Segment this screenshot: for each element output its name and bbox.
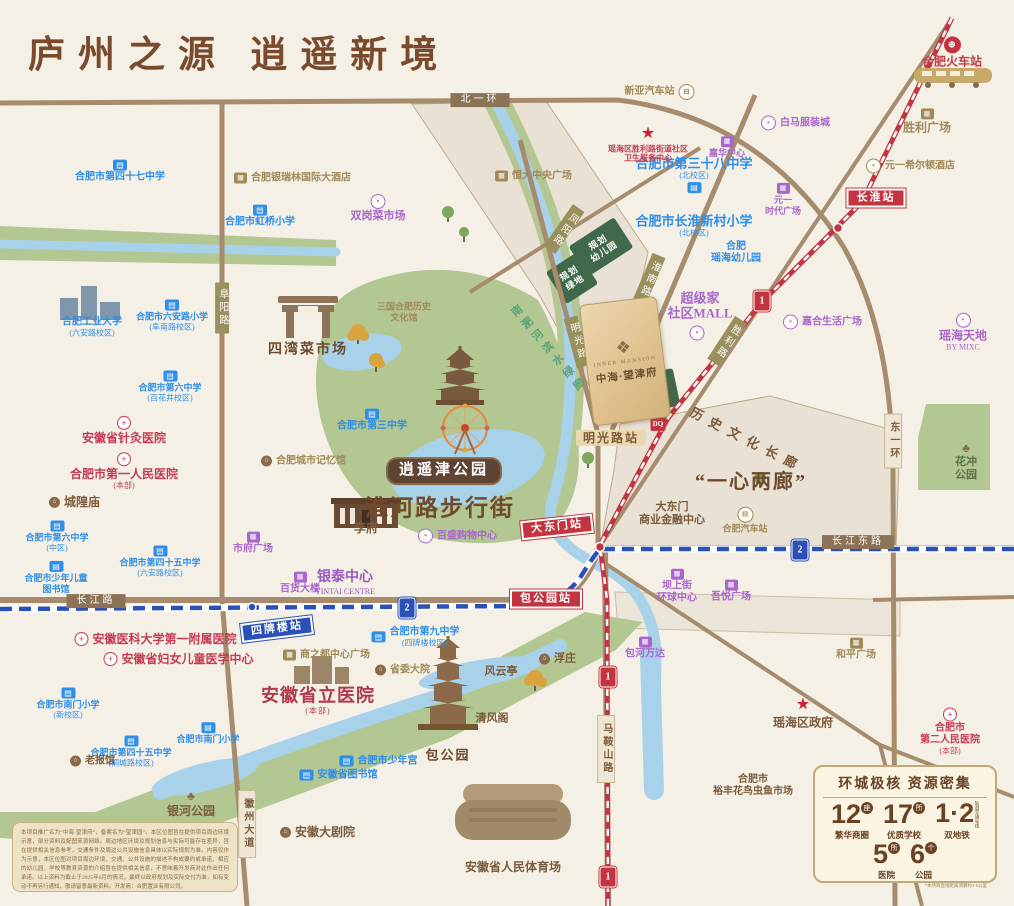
school-label: ▤合肥市六安路小学(阜南路校区): [136, 298, 208, 331]
mall-label: ▦元一时代广场: [765, 182, 801, 216]
hotel-label: ▦合肥银瑞林国际大酒店: [233, 172, 351, 185]
stadium-illustration: [455, 784, 571, 840]
mall-label: ▦胜利广场: [903, 107, 951, 134]
archway-illustration: [278, 296, 338, 338]
gld-icon: ▦: [495, 171, 508, 182]
sch-icon: ▤: [61, 687, 75, 698]
school-label: ▤合肥市南门小学(新校区): [36, 686, 99, 719]
gld-icon: ▦: [283, 650, 296, 661]
school-label: ▤合肥市虹桥小学: [225, 204, 295, 229]
star-icon: ★: [642, 126, 655, 143]
metro-line1-badge: 1: [753, 290, 772, 313]
market-label: ▪双岗菜市场: [351, 193, 406, 223]
stat-item: 1·2轨道交通号线双地铁: [935, 800, 979, 841]
road-label-maanshanlu: 马鞍山路: [597, 715, 615, 783]
dot-icon: ⌂: [539, 654, 550, 665]
school-label: ▤合肥市第六中学(百花井校区): [138, 369, 201, 402]
stat-item: 12座繁华商圈: [831, 801, 873, 841]
dot-icon: ⌂: [280, 827, 291, 838]
mall-label: ▦坝上街环球中心: [657, 568, 697, 605]
m2-icon: 2: [399, 598, 416, 619]
pur-icon: ▦: [671, 569, 684, 580]
market-label: 合肥市裕丰花鸟虫鱼市场: [713, 774, 793, 798]
hospital-label: +合肥市第一人民医院(本部): [70, 451, 178, 491]
mall-label: ▦市府广场: [233, 531, 273, 556]
theater-label: ⌂安徽大剧院: [279, 825, 355, 839]
sch-icon: ▤: [253, 205, 267, 216]
mall-label: ▦恒大中央广场: [494, 170, 572, 183]
slogan-label: “一心两廊”: [695, 471, 807, 495]
purO-icon: ▪: [783, 315, 798, 330]
sch-icon: ▤: [50, 520, 64, 531]
purO-icon: ▪: [955, 313, 970, 328]
star-icon: ★: [797, 698, 810, 715]
road-label-beiyihuan: 北一环: [451, 93, 510, 107]
stat-item: 6个公园: [910, 841, 937, 881]
road-label-changjianglu: 长江路: [67, 594, 126, 608]
dot-icon: ⌂: [375, 665, 386, 676]
gldO-icon: ▪: [866, 159, 881, 174]
m1-icon: 1: [600, 867, 617, 888]
m2-icon: 2: [792, 540, 809, 561]
hos-icon: +: [74, 632, 88, 646]
metro-line1-badge: 1: [599, 666, 618, 689]
hospital-label: +合肥市第二人民医院(本部): [920, 706, 980, 755]
stats-title: 环城极核 资源密集: [823, 773, 987, 798]
purO-icon: ▪: [690, 326, 705, 341]
park-label: ♣花冲公园: [955, 440, 977, 482]
mall-label: ▦和平广场: [836, 637, 876, 662]
government-label: ★瑶海区政府: [773, 697, 833, 730]
sch-icon: ▤: [300, 770, 314, 781]
clinic-label: ★瑶海区胜利路街道社区卫生服务中心: [608, 125, 688, 162]
page-title: 庐州之源 逍遥新境: [28, 24, 450, 78]
dq-icon: DQ: [651, 417, 666, 431]
pur-icon: ▦: [720, 136, 733, 147]
mall-icon: ▪: [689, 325, 706, 342]
stat-item: 17所优质学校: [883, 801, 925, 841]
hospital-label: +安徽省针灸医院: [82, 415, 166, 445]
sch-icon: ▤: [49, 561, 63, 572]
mall-label: ▪嘉合生活广场: [782, 314, 862, 331]
road-label-huizhoudadao: 徽州大道: [238, 790, 256, 858]
street-label: 淮河路步行街: [365, 494, 515, 521]
mall-label: 银泰中心YINTAI CENTRE: [315, 570, 375, 596]
museum-label: ⌂合肥城市记忆馆: [260, 455, 346, 468]
stat-item: 5所医院: [873, 841, 900, 881]
purO-icon: ▪: [418, 529, 433, 544]
pur-icon: ▦: [725, 580, 738, 591]
pur-icon: ▦: [294, 572, 307, 583]
sch-icon: ▤: [340, 756, 354, 767]
stats-note: *本项目直线距离测算约3-6公里: [823, 883, 987, 889]
mall-label: ▦嘉华中心: [709, 135, 745, 159]
mall-label: 超级家社区MALL: [667, 291, 732, 322]
museum-label: ⌂老报馆: [69, 755, 115, 768]
sch-icon: ▤: [113, 160, 127, 171]
park-label: ♣银河公园: [167, 788, 215, 818]
sch-icon: ▤: [165, 299, 179, 310]
landmark-label: 李府: [354, 521, 378, 535]
pavilion-label: 清风阁: [476, 713, 509, 726]
park-badge: 逍遥津公园: [388, 459, 500, 483]
station-baogongyuan: 包公园站: [512, 592, 580, 607]
tree-icon: ♣: [187, 789, 195, 803]
school-label: 合肥工业大学(六安路校区): [62, 316, 122, 337]
dot-icon: ⌂: [261, 456, 272, 467]
bus-station-label: 新亚汽车站⊟: [625, 83, 696, 101]
sch-icon: ▤: [153, 545, 167, 556]
pur-icon: ▦: [639, 637, 652, 648]
hotel-label: ▪元一希尔顿酒店: [865, 158, 955, 175]
school-label: ▤合肥市少年儿童图书馆: [24, 560, 87, 594]
museum-label: 三国合肥历史文化馆: [377, 301, 431, 322]
dot-icon: ⌂: [49, 497, 60, 508]
stats-panel: 环城极核 资源密集 12座繁华商圈17所优质学校1·2轨道交通号线双地铁5所医院…: [813, 765, 997, 883]
park-label: 包公园: [425, 747, 470, 762]
project-site-block: ❖ INNER MANSION 中海·望津府: [579, 296, 671, 427]
mall-label: ▪瑶海天地BY MIXC: [939, 312, 987, 353]
pavilion-label: 风云亭: [485, 666, 518, 679]
road-label-changjiangdonglu: 长江东路: [822, 535, 894, 549]
hos-icon: +: [943, 707, 957, 721]
disclaimer-text: 本项目推广名为“中海·望津府”，备案名为“望津园”。本区位图旨在提供项目周边环境…: [12, 822, 238, 892]
pur-icon: ▦: [776, 183, 789, 194]
sch-icon: ▤: [365, 409, 379, 420]
school-label: ▤安徽省图书馆: [299, 769, 378, 782]
university-building-illustration: [60, 286, 120, 320]
bus-station-label: ⊟合肥汽车站: [722, 506, 767, 535]
tree-icon: ♣: [962, 441, 970, 455]
school-label: ▤合肥市第三中学: [337, 408, 407, 433]
mall-label: ▦吾悦广场: [711, 579, 751, 604]
stadium-label: 安徽省人民体育场: [465, 860, 561, 874]
m1-icon: 1: [600, 667, 617, 688]
gld-icon: ▦: [850, 638, 863, 649]
sch-icon: ▤: [372, 631, 386, 642]
train-illustration: [914, 68, 992, 88]
pavilion-label: ⌂浮庄: [538, 653, 576, 666]
bus-icon: ⊟: [737, 507, 753, 523]
gld-icon: ▦: [234, 173, 247, 184]
sch-icon: ▤: [201, 722, 215, 733]
school-label: ▤合肥市第九中学(四牌楼校区): [371, 626, 460, 647]
hos-icon: +: [103, 652, 117, 666]
school-label: 合肥市长淮新村小学(北校区): [635, 214, 752, 239]
project-logo-icon: ❖: [615, 338, 632, 357]
school-label: ▤合肥市南门小学: [176, 721, 239, 745]
railway-station-label: ⊕合肥火车站: [922, 35, 982, 68]
m1-icon: 1: [754, 291, 771, 312]
pur-icon: ▦: [247, 532, 260, 543]
metro-line2-badge: 2: [398, 597, 417, 620]
hospital-label: +安徽医科大学第一附属医院: [73, 631, 236, 647]
road-label-dongyihuan: 东一环: [884, 414, 902, 469]
school-label: ▤合肥市少年宫: [339, 755, 418, 768]
hospital-label: 安徽省立医院(本部): [261, 686, 375, 717]
sch-icon: ▤: [163, 370, 177, 381]
metro-line2-badge: 2: [791, 539, 810, 562]
landmark-label: ⌂省委大院: [374, 664, 430, 677]
map-poster: { "title": "庐州之源 逍遥新境", "project": {"nam…: [0, 0, 1014, 906]
stats-grid: 12座繁华商圈17所优质学校1·2轨道交通号线双地铁5所医院6个公园: [823, 798, 987, 881]
purO-icon: ▪: [761, 116, 776, 131]
hos-icon: +: [117, 452, 131, 466]
temple-label: ⌂城隍庙: [48, 495, 100, 509]
school-label: ▤合肥市第四十七中学: [75, 159, 165, 184]
dot-icon: ⌂: [70, 756, 81, 767]
mall-label: ▦商之都中心广场: [282, 649, 370, 662]
district-label: 大东门商业金融中心: [639, 501, 705, 527]
metro-line1-badge: 1: [599, 866, 618, 889]
gld-icon: ▦: [920, 108, 933, 119]
market-label: 四湾菜市场: [268, 343, 348, 360]
school-label: ▤合肥市第四十五中学(六安路校区): [119, 544, 200, 577]
purO-icon: ▪: [371, 194, 386, 209]
station-changhuai: 长淮站: [849, 191, 904, 206]
school-label: 合肥瑶海幼儿园: [711, 241, 761, 265]
road-label-fuyanglu: 阜阳路: [215, 283, 229, 334]
station-mingguanglu: 明光路站: [576, 430, 646, 446]
mall-label: ▦包河万达: [625, 636, 665, 661]
hospital-label: +安徽省妇女儿童医学中心: [102, 651, 253, 667]
mall-label: ▪百盛购物中心: [417, 528, 497, 545]
sch-icon: ▤: [124, 735, 138, 746]
hos-icon: +: [117, 416, 131, 430]
bus-icon: ⊟: [679, 84, 695, 100]
school-label: ▤合肥市第六中学(中区): [25, 519, 88, 552]
sch-icon: ▤: [687, 182, 701, 193]
mall-label: ▪白马服装城: [760, 115, 830, 132]
rail-icon: ⊕: [943, 36, 960, 53]
